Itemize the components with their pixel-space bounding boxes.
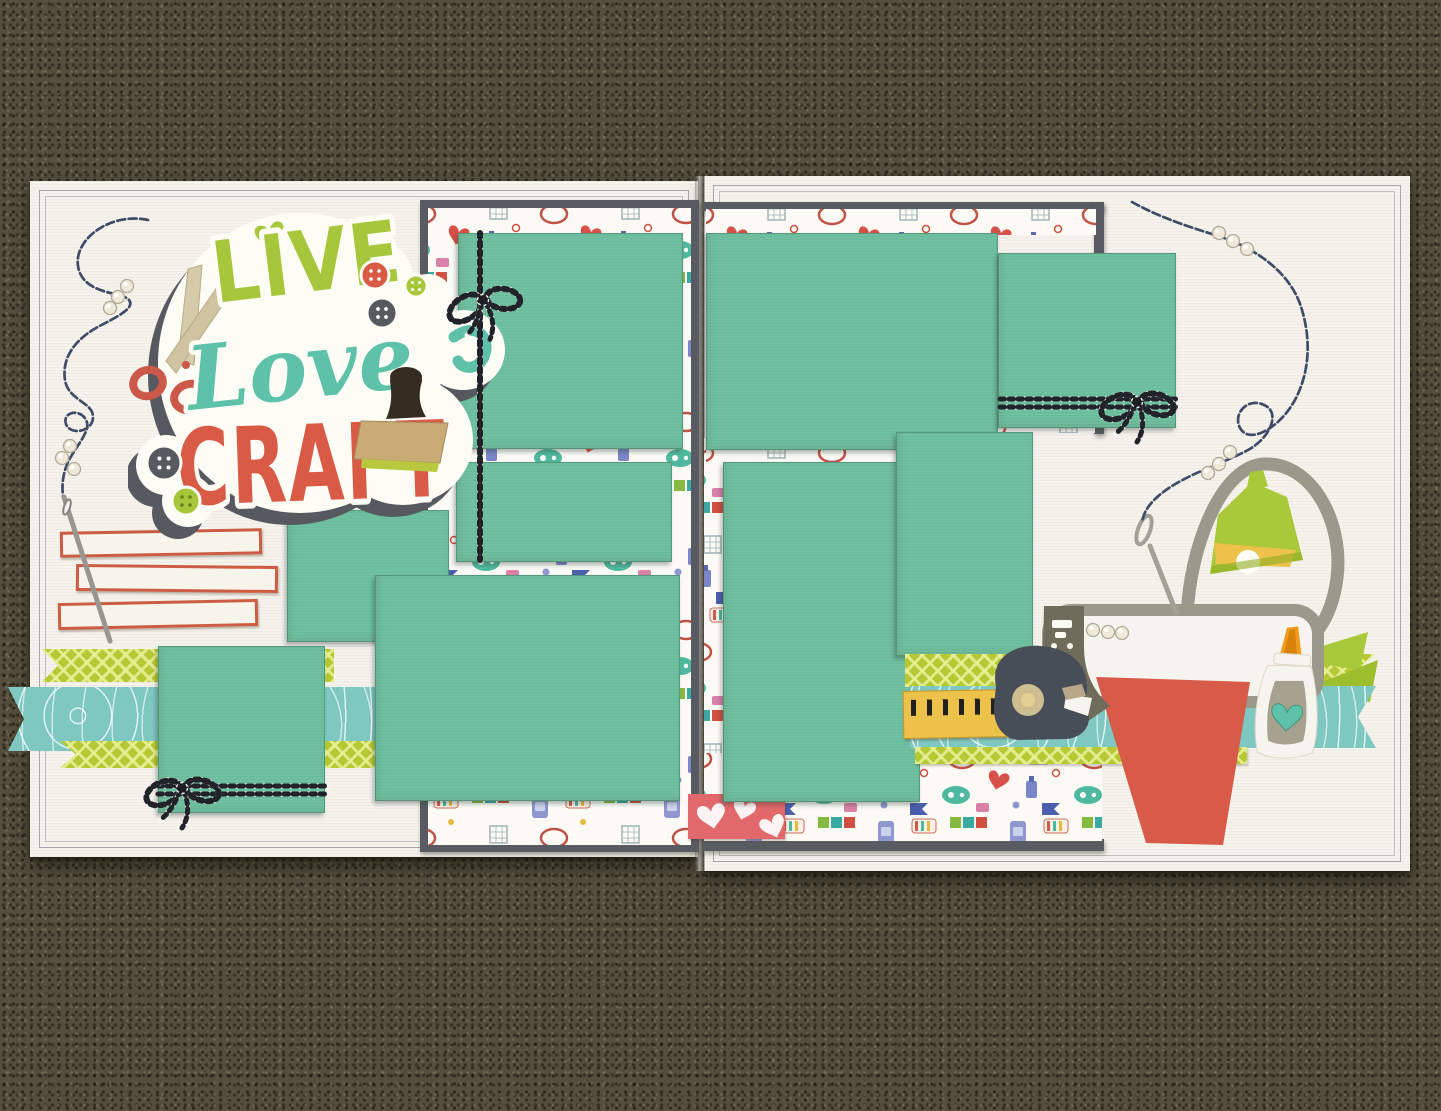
scrapbook-photo: LIVE Love CRAFT <box>0 0 1441 1111</box>
photo-mat-right-topright <box>998 253 1176 428</box>
title-diecut: LIVE Love CRAFT <box>128 205 528 540</box>
needle-right-icon <box>1133 514 1176 612</box>
journaling-strip-2 <box>76 564 278 593</box>
photo-mat-right-bottom <box>723 462 920 802</box>
red-cardstock-sheet <box>1096 677 1250 845</box>
photo-mat-left-small <box>158 646 325 813</box>
photo-mat-left-bottom <box>375 575 680 801</box>
right-patterned-paper-top <box>706 209 1096 235</box>
photo-mat-right-top <box>706 233 998 450</box>
craft-machine-cluster <box>980 440 1420 860</box>
journaling-strip-3 <box>58 599 259 630</box>
